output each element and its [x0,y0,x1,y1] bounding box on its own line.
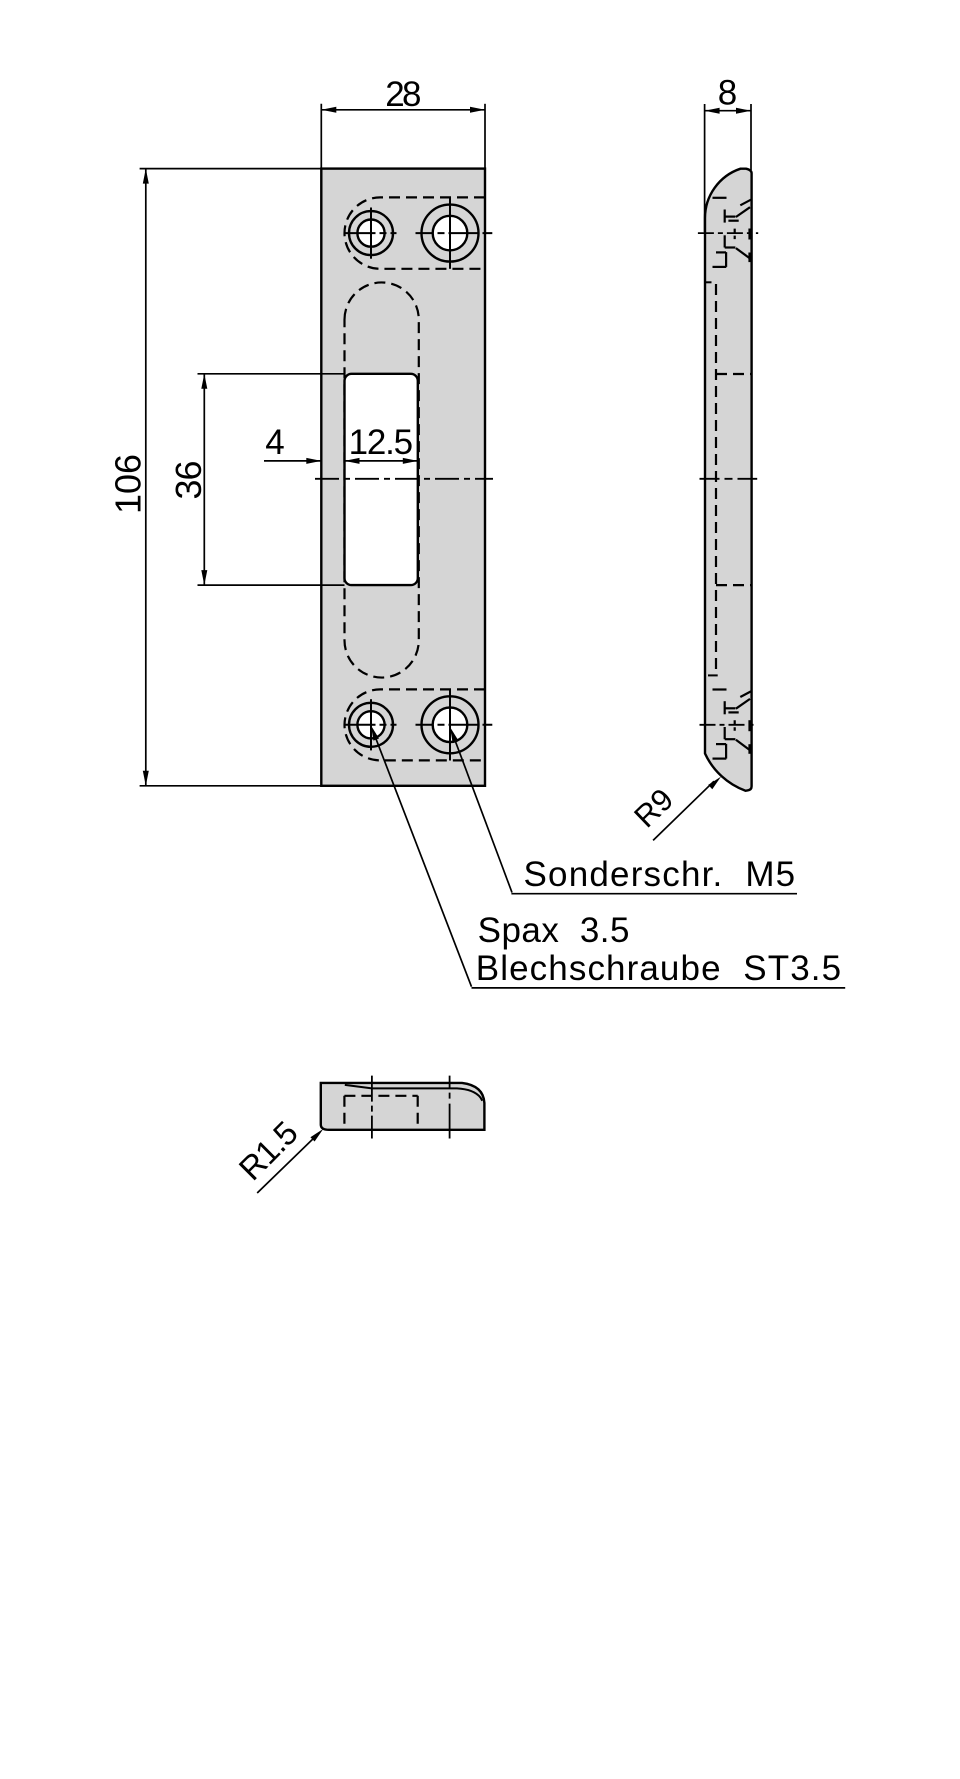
svg-text:36: 36 [168,461,209,499]
svg-text:28: 28 [385,75,420,114]
svg-text:8: 8 [718,73,737,112]
svg-text:R9: R9 [627,782,680,835]
svg-text:Blechschraube ST3.5: Blechschraube ST3.5 [476,949,842,988]
svg-text:Spax 3.5: Spax 3.5 [478,911,630,950]
svg-text:12.5: 12.5 [349,423,412,462]
svg-text:Sonderschr. M5: Sonderschr. M5 [524,855,797,894]
svg-text:106: 106 [108,454,149,514]
svg-text:R1.5: R1.5 [232,1115,305,1188]
svg-text:4: 4 [265,423,284,462]
